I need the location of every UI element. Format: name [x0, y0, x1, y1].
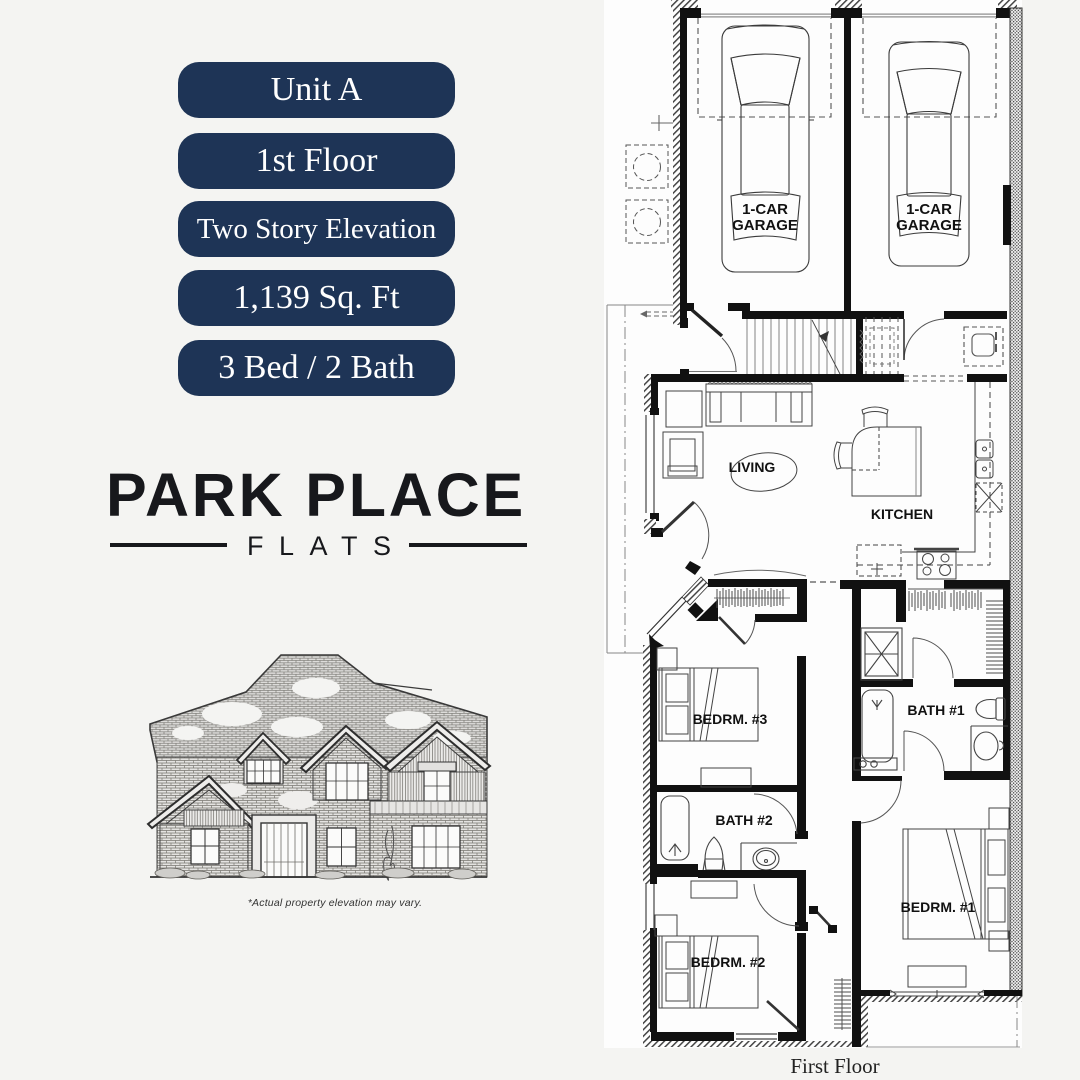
svg-text:1-CAR: 1-CAR: [906, 201, 952, 218]
svg-text:BATH #2: BATH #2: [715, 812, 773, 828]
svg-text:BEDRM. #2: BEDRM. #2: [691, 954, 766, 970]
svg-text:KITCHEN: KITCHEN: [871, 506, 933, 522]
svg-text:BEDRM. #3: BEDRM. #3: [693, 711, 768, 727]
svg-text:GARAGE: GARAGE: [896, 217, 962, 234]
svg-text:GARAGE: GARAGE: [732, 217, 798, 234]
svg-text:LIVING: LIVING: [729, 459, 776, 475]
svg-text:BATH #1: BATH #1: [907, 702, 965, 718]
svg-text:1-CAR: 1-CAR: [742, 201, 788, 218]
svg-text:BEDRM. #1: BEDRM. #1: [901, 899, 976, 915]
